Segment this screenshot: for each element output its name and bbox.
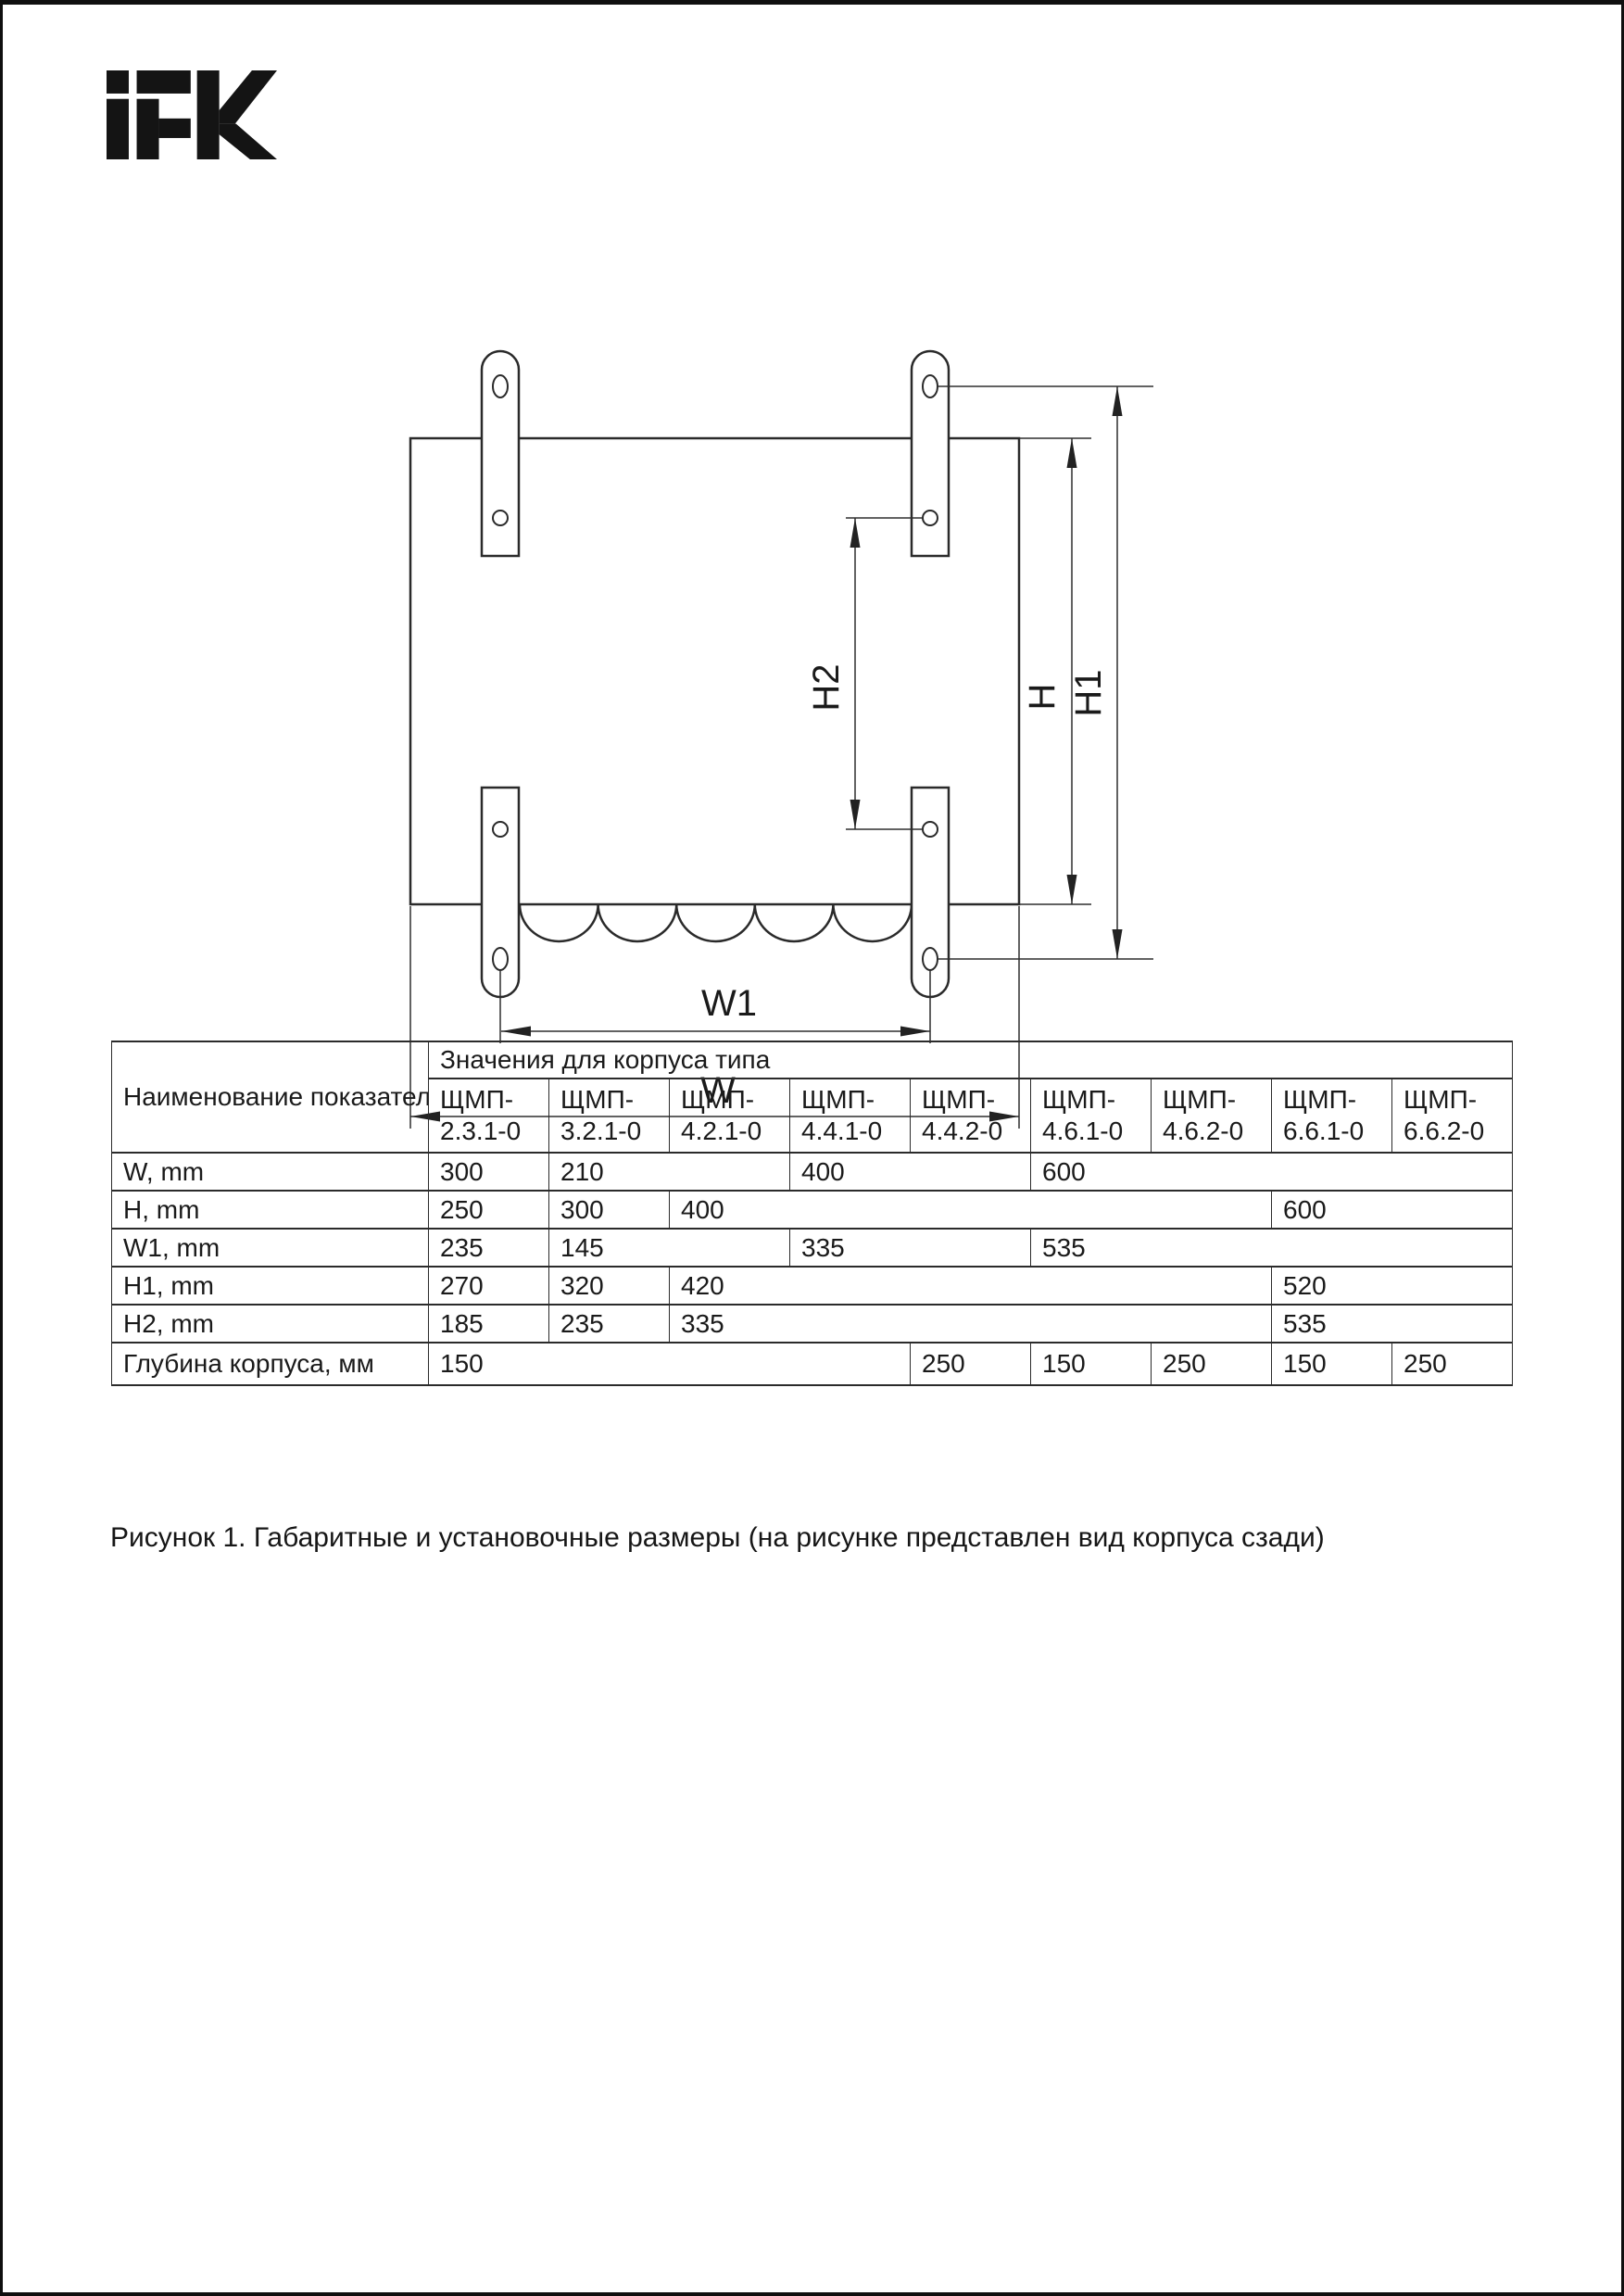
- logo-e-top: [137, 70, 191, 94]
- table-row-w1: W1, mm 235 145 335 535: [112, 1229, 1513, 1267]
- column-header-schmp-4210: ЩМП-4.2.1-0: [670, 1079, 790, 1153]
- type-code: 6.6.1-0: [1283, 1116, 1390, 1147]
- logo-k-upper-arm: [220, 70, 277, 124]
- table-header-values: Значения для корпуса типа: [429, 1041, 1513, 1079]
- column-header-schmp-6610: ЩМП-6.6.1-0: [1272, 1079, 1392, 1153]
- row-label: W1, mm: [112, 1229, 429, 1267]
- type-code: 4.6.1-0: [1042, 1116, 1149, 1147]
- table-cell: 600: [1272, 1191, 1513, 1229]
- table-cell: 400: [790, 1153, 1031, 1191]
- table-cell: 150: [1031, 1343, 1152, 1385]
- row-label: W, mm: [112, 1153, 429, 1191]
- column-header-schmp-2310: ЩМП-2.3.1-0: [429, 1079, 549, 1153]
- table-cell: 250: [911, 1343, 1031, 1385]
- type-code: 4.2.1-0: [681, 1116, 787, 1147]
- type-code: 3.2.1-0: [560, 1116, 667, 1147]
- column-header-schmp-4420: ЩМП-4.4.2-0: [911, 1079, 1031, 1153]
- table-cell: 150: [429, 1343, 911, 1385]
- type-code: 2.3.1-0: [440, 1116, 547, 1147]
- table-cell: 420: [670, 1267, 1272, 1305]
- table-cell: 300: [429, 1153, 549, 1191]
- row-label: H2, mm: [112, 1305, 429, 1343]
- table-cell: 210: [549, 1153, 790, 1191]
- mounting-bracket-bottom-left: [482, 788, 519, 997]
- type-code: 4.6.2-0: [1163, 1116, 1269, 1147]
- table-cell: 335: [790, 1229, 1031, 1267]
- figure-caption: Рисунок 1. Габаритные и установочные раз…: [110, 1522, 1325, 1554]
- logo-e-stem: [137, 99, 159, 159]
- column-header-schmp-3210: ЩМП-3.2.1-0: [549, 1079, 670, 1153]
- dimension-label-h1: H1: [1068, 669, 1109, 716]
- table-row-w: W, mm 300 210 400 600: [112, 1153, 1513, 1191]
- table-row-h1: H1, mm 270 320 420 520: [112, 1267, 1513, 1305]
- iek-logo: [107, 70, 277, 159]
- type-prefix: ЩМП-: [922, 1084, 1028, 1116]
- table-cell: 235: [429, 1229, 549, 1267]
- type-prefix: ЩМП-: [440, 1084, 547, 1116]
- table-header-name: Наименование показателя: [112, 1041, 429, 1153]
- type-code: 4.4.1-0: [801, 1116, 908, 1147]
- table-cell: 250: [1392, 1343, 1513, 1385]
- logo-i-dot: [107, 70, 129, 94]
- logo-i-body: [107, 99, 129, 159]
- dimension-drawing: H2 H H1 W1 W: [352, 315, 1186, 1149]
- table-cell: 270: [429, 1267, 549, 1305]
- type-code: 4.4.2-0: [922, 1116, 1028, 1147]
- table-cell: 520: [1272, 1267, 1513, 1305]
- table-cell: 320: [549, 1267, 670, 1305]
- table-row-h2: H2, mm 185 235 335 535: [112, 1305, 1513, 1343]
- table-cell: 300: [549, 1191, 670, 1229]
- type-prefix: ЩМП-: [1283, 1084, 1390, 1116]
- dimension-label-h: H: [1022, 684, 1063, 711]
- knockout-scallops: [520, 904, 912, 941]
- type-prefix: ЩМП-: [681, 1084, 787, 1116]
- logo-k-stem: [197, 70, 220, 159]
- column-header-schmp-4410: ЩМП-4.4.1-0: [790, 1079, 911, 1153]
- type-prefix: ЩМП-: [560, 1084, 667, 1116]
- table-cell: 150: [1272, 1343, 1392, 1385]
- table-cell: 250: [429, 1191, 549, 1229]
- dimension-lines: [410, 386, 1153, 1129]
- document-page: H2 H H1 W1 W Наименование показателя Зна…: [0, 0, 1624, 2296]
- type-code: 6.6.2-0: [1404, 1116, 1510, 1147]
- logo-k-lower-arm: [220, 124, 277, 159]
- table-cell: 535: [1031, 1229, 1513, 1267]
- logo-e-arm: [159, 119, 191, 138]
- dimension-label-w1: W1: [701, 983, 757, 1024]
- table-cell: 335: [670, 1305, 1272, 1343]
- type-prefix: ЩМП-: [1404, 1084, 1510, 1116]
- row-label: H, mm: [112, 1191, 429, 1229]
- table-cell: 185: [429, 1305, 549, 1343]
- type-prefix: ЩМП-: [801, 1084, 908, 1116]
- mounting-bracket-bottom-right: [912, 788, 949, 997]
- column-header-schmp-4610: ЩМП-4.6.1-0: [1031, 1079, 1152, 1153]
- table-row-depth: Глубина корпуса, мм 150 250 150 250 150 …: [112, 1343, 1513, 1385]
- table-cell: 235: [549, 1305, 670, 1343]
- table-cell: 535: [1272, 1305, 1513, 1343]
- type-prefix: ЩМП-: [1042, 1084, 1149, 1116]
- table-cell: 250: [1152, 1343, 1272, 1385]
- table-cell: 400: [670, 1191, 1272, 1229]
- table-cell: 600: [1031, 1153, 1513, 1191]
- table-cell: 145: [549, 1229, 790, 1267]
- type-prefix: ЩМП-: [1163, 1084, 1269, 1116]
- dimension-label-h2: H2: [806, 663, 847, 711]
- row-label: Глубина корпуса, мм: [112, 1343, 429, 1385]
- column-header-schmp-4620: ЩМП-4.6.2-0: [1152, 1079, 1272, 1153]
- dimensions-table: Наименование показателя Значения для кор…: [111, 1041, 1513, 1386]
- row-label: H1, mm: [112, 1267, 429, 1305]
- column-header-schmp-6620: ЩМП-6.6.2-0: [1392, 1079, 1513, 1153]
- table-row-h: H, mm 250 300 400 600: [112, 1191, 1513, 1229]
